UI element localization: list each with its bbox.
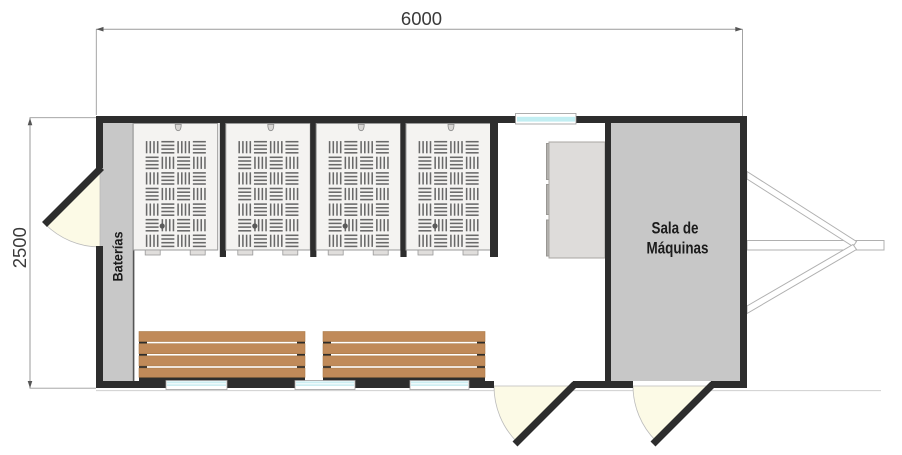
svg-text:Sala de: Sala de bbox=[652, 220, 699, 238]
svg-text:Máquinas: Máquinas bbox=[647, 240, 709, 258]
svg-text:2500: 2500 bbox=[9, 227, 30, 268]
svg-text:Baterías: Baterías bbox=[109, 231, 125, 281]
svg-text:6000: 6000 bbox=[401, 8, 442, 29]
